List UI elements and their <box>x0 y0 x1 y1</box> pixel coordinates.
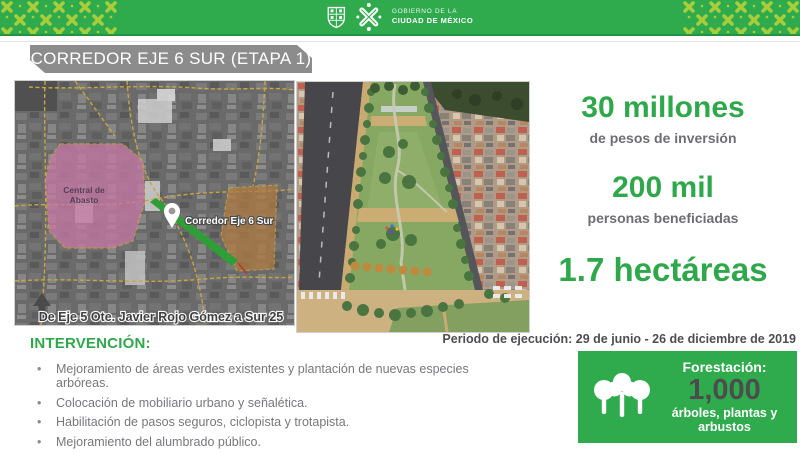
top-bar: GOBIERNO DE LA CIUDAD DE MÉXICO <box>0 0 800 36</box>
stats-section: 30 millones de pesos de inversión 200 mi… <box>530 93 796 286</box>
forestation-heading: Forestación: <box>658 359 791 375</box>
stat-area-value: 1.7 hectáreas <box>530 253 796 286</box>
list-item: Mejoramiento del alumbrado público. <box>30 435 470 449</box>
intervention-list: Mejoramiento de áreas verdes existentes … <box>30 362 470 449</box>
list-item: Mejoramiento de áreas verdes existentes … <box>30 362 470 391</box>
divider-line <box>0 41 800 42</box>
government-name-line1: GOBIERNO DE LA <box>392 8 473 16</box>
list-item: Habilitación de pasos seguros, ciclopist… <box>30 415 470 429</box>
execution-period: Periodo de ejecución: 29 de junio - 26 d… <box>442 332 796 346</box>
government-name-line2: CIUDAD DE MÉXICO <box>392 16 473 25</box>
park-render-image <box>296 81 530 333</box>
intervention-section: INTERVENCIÓN: Mejoramiento de áreas verd… <box>30 335 470 454</box>
forestation-card: Forestación: 1,000 árboles, plantas y ar… <box>578 351 797 443</box>
render-fountain <box>381 106 417 112</box>
stat-investment-label: de pesos de inversión <box>530 130 796 146</box>
slide: GOBIERNO DE LA CIUDAD DE MÉXICO CORREDOR… <box>0 0 800 449</box>
header-pattern-left <box>0 0 118 34</box>
forestation-label: árboles, plantas y arbustos <box>658 406 791 435</box>
stat-beneficiaries-value: 200 mil <box>530 173 796 203</box>
government-logo: GOBIERNO DE LA CIUDAD DE MÉXICO <box>327 0 473 34</box>
intervention-heading: INTERVENCIÓN: <box>30 335 470 352</box>
stat-area: 1.7 hectáreas <box>530 253 796 286</box>
forestation-value: 1,000 <box>658 375 791 405</box>
trees-icon <box>586 370 658 424</box>
location-map-image: Central de Abasto Corredor Eje 6 Sur De … <box>14 80 295 326</box>
render-path-band-top <box>370 116 427 126</box>
coat-of-arms-icon <box>327 6 346 29</box>
map-area-label-line2: Abasto <box>70 195 99 205</box>
stat-investment-value: 30 millones <box>530 93 796 123</box>
stat-beneficiaries-label: personas beneficiadas <box>530 210 796 226</box>
header-pattern-right <box>682 0 800 34</box>
government-name: GOBIERNO DE LA CIUDAD DE MÉXICO <box>392 8 473 26</box>
map-caption: De Eje 5 Ote. Javier Rojo Gómez a Sur 25 <box>39 310 284 324</box>
stat-investment: 30 millones de pesos de inversión <box>530 93 796 146</box>
map-corridor-label: Corredor Eje 6 Sur <box>185 216 273 227</box>
map-area-label-line1: Central de <box>63 185 105 195</box>
page-title: CORREDOR EJE 6 SUR (ETAPA 1) <box>30 45 312 73</box>
stat-beneficiaries: 200 mil personas beneficiadas <box>530 173 796 226</box>
forestation-text: Forestación: 1,000 árboles, plantas y ar… <box>658 359 791 434</box>
cdmx-x-logo-icon <box>355 2 383 32</box>
list-item: Colocación de mobiliario urbano y señalé… <box>30 396 470 410</box>
